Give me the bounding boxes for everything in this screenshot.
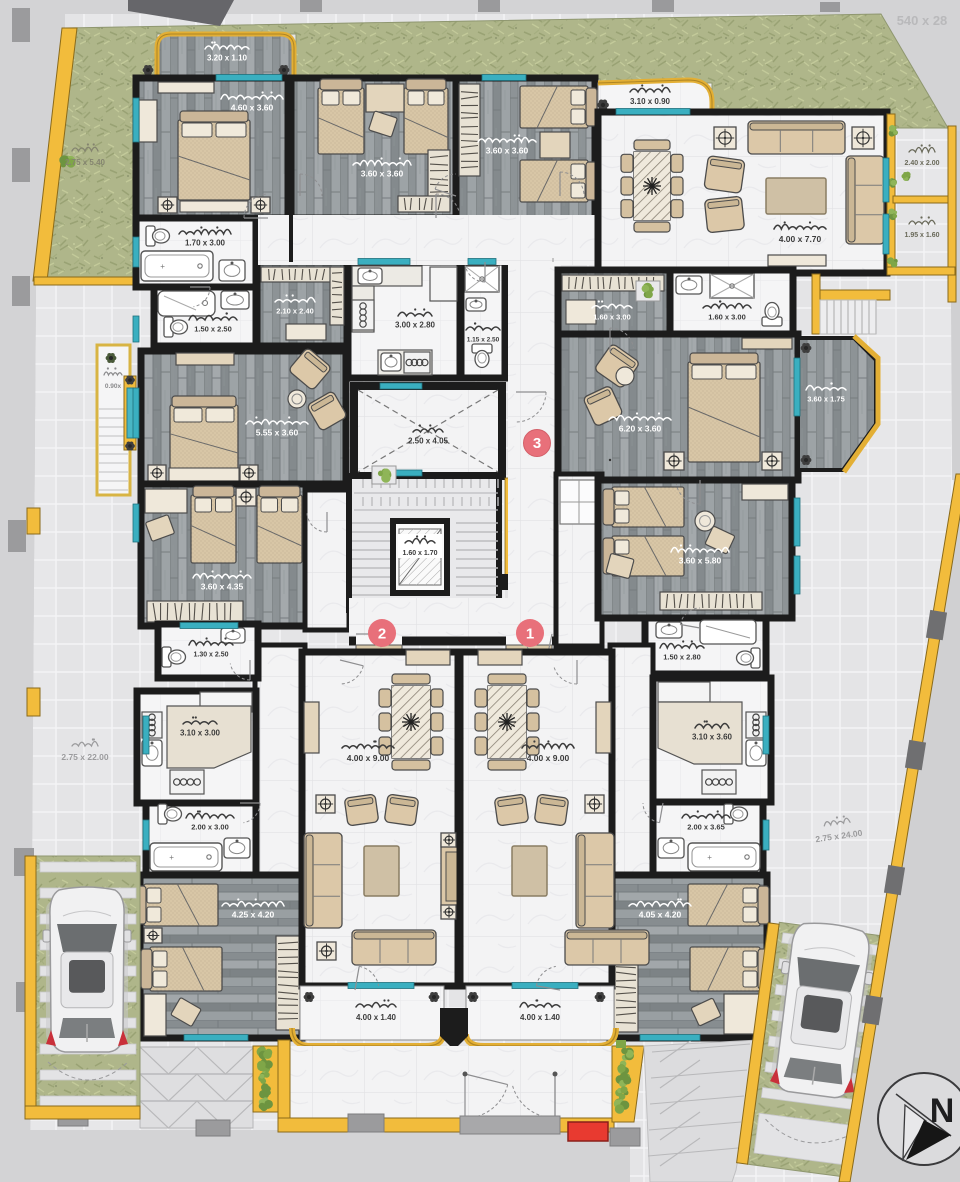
svg-text:3.00 x 2.80: 3.00 x 2.80 (395, 321, 436, 330)
svg-text:4.00 x 7.70: 4.00 x 7.70 (779, 234, 822, 244)
svg-text:3.10 x 3.00: 3.10 x 3.00 (180, 729, 221, 738)
svg-text:2.40 x 2.00: 2.40 x 2.00 (904, 160, 939, 167)
svg-text:2.75 x 5.40: 2.75 x 5.40 (65, 158, 106, 167)
svg-text:1.50 x 2.80: 1.50 x 2.80 (663, 653, 701, 662)
svg-text:4.00 x 9.00: 4.00 x 9.00 (347, 753, 390, 763)
svg-text:540 x 28: 540 x 28 (897, 13, 948, 28)
svg-text:+: + (707, 853, 712, 862)
svg-text:1.50 x 2.50: 1.50 x 2.50 (194, 325, 232, 334)
svg-text:1.60 x 1.70: 1.60 x 1.70 (402, 550, 437, 557)
svg-text:1.60 x 3.00: 1.60 x 3.00 (593, 313, 631, 322)
svg-text:+: + (169, 853, 174, 862)
svg-text:4.25 x 4.20: 4.25 x 4.20 (232, 910, 275, 920)
svg-text:1: 1 (526, 626, 534, 643)
svg-text:5.55 x 3.60: 5.55 x 3.60 (256, 428, 299, 438)
svg-text:2.10 x 2.40: 2.10 x 2.40 (276, 307, 314, 316)
svg-text:2.50 x 4.05: 2.50 x 4.05 (408, 437, 449, 446)
svg-text:3.10 x 3.60: 3.10 x 3.60 (692, 733, 733, 742)
svg-text:N: N (930, 1092, 955, 1130)
svg-text:3.60 x 5.80: 3.60 x 5.80 (679, 556, 722, 566)
svg-text:3.60 x 3.60: 3.60 x 3.60 (361, 169, 404, 179)
svg-text:3.20 x 1.10: 3.20 x 1.10 (207, 54, 248, 63)
svg-text:4.05 x 4.20: 4.05 x 4.20 (639, 910, 682, 920)
svg-text:3.60 x 4.35: 3.60 x 4.35 (201, 582, 244, 592)
svg-text:1.70 x 3.00: 1.70 x 3.00 (185, 239, 226, 248)
svg-text:3.60 x 1.75: 3.60 x 1.75 (807, 395, 845, 404)
svg-text:2: 2 (378, 626, 386, 643)
svg-text:3.60 x 3.60: 3.60 x 3.60 (486, 146, 529, 156)
svg-text:+: + (160, 262, 165, 271)
svg-text:1.95 x 1.60: 1.95 x 1.60 (904, 232, 939, 239)
svg-text:3: 3 (533, 435, 541, 452)
svg-text:1.60 x 3.00: 1.60 x 3.00 (708, 313, 746, 322)
svg-text:2.00 x 3.65: 2.00 x 3.65 (687, 823, 725, 832)
svg-text:1.15 x 2.50: 1.15 x 2.50 (467, 337, 500, 344)
svg-text:2.00 x 3.00: 2.00 x 3.00 (191, 823, 229, 832)
svg-text:4.00 x 1.40: 4.00 x 1.40 (520, 1013, 561, 1022)
svg-text:0.90x: 0.90x (105, 383, 122, 390)
svg-text:4.00 x 1.40: 4.00 x 1.40 (356, 1013, 397, 1022)
svg-text:6.20 x 3.60: 6.20 x 3.60 (619, 424, 662, 434)
svg-text:4.00 x 9.00: 4.00 x 9.00 (527, 753, 570, 763)
svg-text:3.10 x 0.90: 3.10 x 0.90 (630, 97, 671, 106)
svg-text:4.60 x 3.60: 4.60 x 3.60 (231, 103, 274, 113)
svg-text:2.75 x 22.00: 2.75 x 22.00 (61, 752, 109, 762)
svg-text:1.30 x 2.50: 1.30 x 2.50 (193, 652, 228, 659)
